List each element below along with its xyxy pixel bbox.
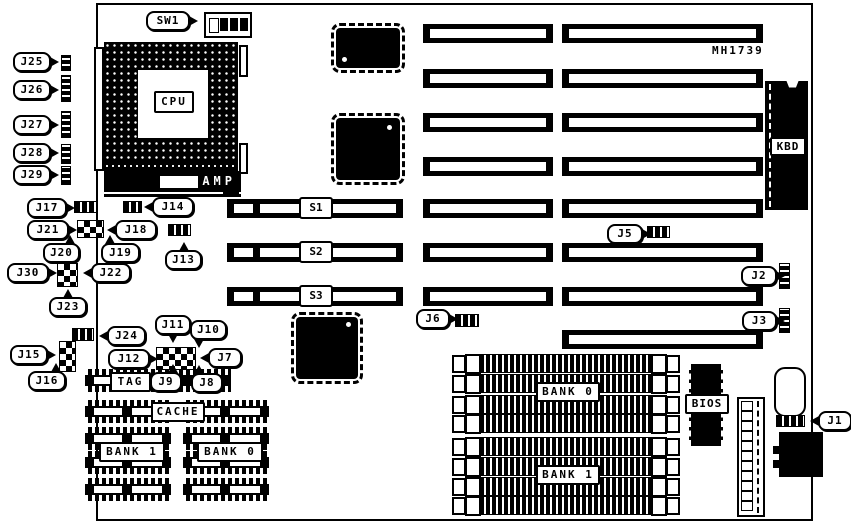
callout-j30: J30 [7,263,49,283]
slot-s1-label: S1 [299,197,333,219]
callout-j19: J19 [101,243,140,263]
part-number: MH1739 [712,44,764,57]
isa-slot-segment [423,243,553,262]
callout-j8: J8 [191,373,223,393]
slot-s3: S3 [227,287,403,306]
isa-slot-segment [562,287,763,306]
callout-j28: J28 [13,143,51,163]
jumper-block-j15 [59,341,76,372]
simm-socket [452,354,680,371]
isa-slot-segment [423,199,553,218]
callout-j10: J10 [190,320,227,340]
callout-j13: J13 [165,250,202,270]
callout-j27: J27 [13,115,51,135]
motherboard-diagram: CPU AMP SW1 S1 [0,0,851,527]
cpu-socket-tab-bottom [239,143,248,174]
callout-j9: J9 [150,372,182,392]
cache-bank1-label: BANK 1 [99,442,165,462]
power-dash-line [757,401,759,513]
bios-label: BIOS [685,394,729,414]
isa-slot-segment [423,24,553,43]
simm-socket [452,496,680,513]
kbd-label: KBD [770,137,806,156]
callout-j2: J2 [741,266,777,286]
callout-j18: J18 [115,220,157,240]
simm-socket [452,414,680,431]
battery-outline [774,367,806,417]
dip-switch-cell-2 [220,18,228,31]
callout-j17: J17 [27,198,67,218]
callout-j25: J25 [13,52,51,72]
sw1-dip-switch [204,12,252,38]
qfp-chip-2 [336,118,400,180]
jumper-j1 [776,415,805,427]
amp-label: AMP [202,174,236,188]
simm-socket [452,437,680,454]
simm-bank0-label: BANK 0 [536,382,600,402]
callout-j1: J1 [818,411,851,431]
amp-stub [223,189,239,194]
cache-bank0-label: BANK 0 [197,442,263,462]
isa-slot-segment [423,157,553,176]
cpu-socket-tab-top [239,45,248,77]
cache-label: CACHE [151,402,205,422]
dip-switch-cell-3 [230,18,238,31]
isa-slot-segment [562,113,763,132]
cpu-socket-left-rail [94,47,104,171]
callout-j20: J20 [43,243,80,263]
callout-j26: J26 [13,80,51,100]
callout-j14: J14 [152,197,194,217]
io-connector [779,432,823,477]
callout-j11: J11 [155,315,191,335]
callout-j16: J16 [28,371,66,391]
pin1-dot [342,57,347,62]
amp-window [160,176,198,188]
tag-label: TAG [110,372,151,392]
isa-slot-segment [423,69,553,88]
cache-chip-row [183,478,269,501]
isa-slot-segment [423,113,553,132]
cpu-label: CPU [154,91,194,113]
isa-slot-segment [562,157,763,176]
slot-s3-label: S3 [299,285,333,307]
isa-slot-segment [562,243,763,262]
slot-s2-label: S2 [299,241,333,263]
isa-slot-segment [562,24,763,43]
qfp-chip-1 [336,28,400,68]
callout-sw1: SW1 [146,11,190,31]
pin1-dot [387,125,392,130]
slot-s2: S2 [227,243,403,262]
dip-switch-cell-4 [240,18,248,31]
isa-slot-segment [562,330,763,349]
callout-j23: J23 [49,297,87,317]
amp-connector: AMP [104,171,241,192]
power-pin-column [741,401,753,511]
io-connector-tab [773,460,780,468]
pin1-dot [346,322,351,327]
isa-slot-segment [423,287,553,306]
callout-j22: J22 [91,263,131,283]
io-connector-tab [773,446,780,454]
isa-slot-segment [562,69,763,88]
callout-j7: J7 [208,348,242,368]
slot-s1: S1 [227,199,403,218]
qfp-chip-3 [296,317,358,379]
jumper-j24 [72,328,94,341]
power-connector [737,397,765,517]
cache-chip-row [85,478,171,501]
callout-j21: J21 [27,220,69,240]
callout-j3: J3 [742,311,777,331]
callout-j5: J5 [607,224,643,244]
callout-j6: J6 [416,309,450,329]
amp-pin-strip [104,163,238,171]
simm-bank1-label: BANK 1 [536,465,600,485]
callout-j29: J29 [13,165,51,185]
dip-switch-cell-1 [209,18,219,33]
isa-slot-segment [562,199,763,218]
callout-j15: J15 [10,345,48,365]
cpu-socket: CPU [104,42,238,163]
callout-j24: J24 [107,326,146,346]
jumper-j13 [168,224,191,236]
callout-j12: J12 [108,349,150,369]
